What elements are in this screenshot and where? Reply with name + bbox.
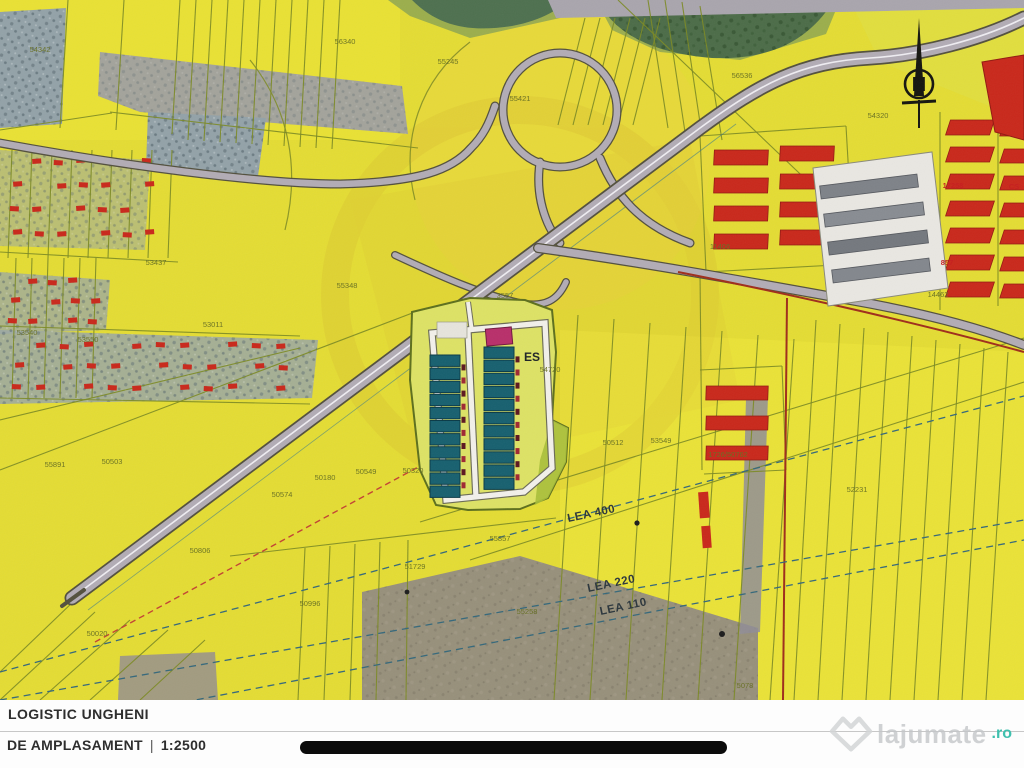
project-title: LOGISTIC UNGHENI: [8, 706, 149, 722]
plan-scale-row: DE AMPLASAMENT|1:2500: [7, 737, 206, 753]
watermark-name: lajumate: [877, 719, 987, 750]
photo-grain: [0, 0, 1024, 700]
plan-label: DE AMPLASAMENT: [7, 737, 143, 753]
cadastral-map-svg: 5434256340552455542156536543205343755348…: [0, 0, 1024, 700]
scale-value: 1:2500: [161, 737, 206, 753]
pipe-separator: |: [143, 737, 161, 753]
watermark-tld: .ro: [992, 725, 1012, 743]
redaction-scale-bar: [300, 741, 727, 754]
lajumate-logo-icon: [829, 716, 873, 752]
lajumate-watermark: lajumate .ro: [829, 716, 1012, 752]
drawing-title-block: LOGISTIC UNGHENI DE AMPLASAMENT|1:2500 l…: [0, 700, 1024, 768]
site-plan-map: 5434256340552455542156536543205343755348…: [0, 0, 1024, 701]
listing-image-page: 5434256340552455542156536543205343755348…: [0, 0, 1024, 768]
